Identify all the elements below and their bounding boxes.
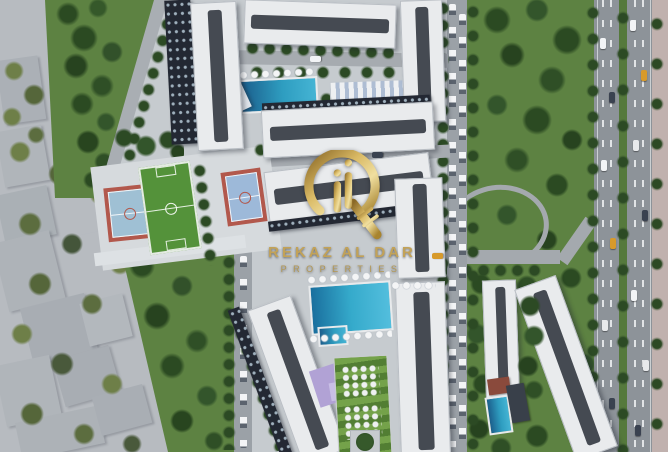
multiuse-court [220, 167, 267, 226]
car [310, 56, 321, 62]
residential-building [190, 1, 244, 151]
garden-tables [341, 364, 381, 398]
car [609, 398, 615, 409]
street-tree-row [466, 0, 480, 452]
street-tree-row [222, 254, 236, 450]
car [635, 425, 641, 436]
brand-watermark: REKAZ AL DAR PROPERTIES [262, 150, 422, 274]
brand-subtitle: PROPERTIES [262, 264, 422, 274]
car [432, 253, 443, 259]
planter-tree [356, 433, 374, 451]
brand-logo [296, 150, 388, 242]
car [641, 70, 647, 81]
residential-building [395, 281, 451, 452]
car [630, 20, 636, 31]
highway-lane-line [610, 0, 612, 452]
residential-building [243, 0, 396, 49]
pergola-row [390, 280, 436, 291]
brand-name: REKAZ AL DAR [262, 244, 422, 261]
highway-lane-line [602, 0, 604, 452]
masterplan-render: REKAZ AL DAR PROPERTIES [0, 0, 668, 452]
car [643, 360, 649, 371]
court-markings [225, 172, 263, 222]
tree-planter [350, 430, 380, 452]
car [631, 290, 637, 301]
car [633, 140, 639, 151]
car [609, 92, 615, 103]
parked-cars-row [449, 4, 456, 448]
car [602, 320, 608, 331]
car [600, 38, 606, 49]
car [601, 160, 607, 171]
highway-lane-line [634, 0, 636, 452]
median-tree-row [616, 0, 630, 452]
car [610, 238, 616, 249]
car [642, 210, 648, 221]
parked-cars-row [459, 14, 466, 448]
highway-lane-line [642, 0, 644, 452]
sidewalk-tree-row [650, 4, 664, 448]
